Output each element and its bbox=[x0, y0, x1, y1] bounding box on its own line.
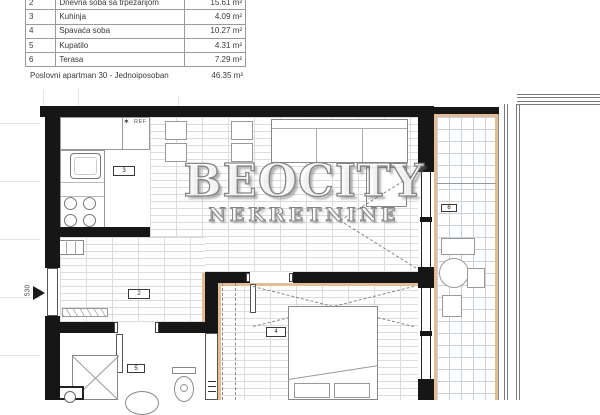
stove-burner bbox=[64, 197, 77, 210]
room-area-cell: 10.27 m² bbox=[184, 24, 245, 38]
wardrobe-dashed-line bbox=[235, 283, 236, 400]
shaft-hatch bbox=[208, 381, 216, 382]
wall-bedroom-top-right bbox=[293, 272, 418, 283]
entrance-door-leaf bbox=[47, 268, 58, 316]
entrance-arrow-icon bbox=[33, 286, 45, 300]
apartment-summary-label: Poslovni apartman 30 - Jednoiposoban bbox=[30, 71, 169, 80]
floorplan-page: { "table": { "rows": [ {"num": "2", "nam… bbox=[0, 0, 600, 400]
wall-bathroom-left bbox=[46, 322, 118, 333]
sofa-backrest-line bbox=[272, 128, 407, 129]
facade-line bbox=[519, 104, 520, 400]
room-label-text: 6 bbox=[447, 205, 450, 211]
room-name-cell: Kuhinja bbox=[56, 10, 184, 24]
room-label-terrace: 6 bbox=[441, 204, 457, 212]
stove-burner bbox=[83, 214, 96, 227]
facade-line bbox=[517, 94, 600, 95]
pillar-terrace-mid bbox=[418, 267, 434, 288]
table-row: 2 Dnevna soba sa trpezarijom 15.61 m² bbox=[26, 0, 246, 10]
wall-terrace-top bbox=[433, 107, 499, 114]
dining-chair bbox=[231, 121, 253, 140]
pillow bbox=[294, 383, 330, 398]
insulation-line bbox=[218, 286, 221, 400]
wardrobe-dashed-line bbox=[222, 283, 223, 400]
toilet-flush bbox=[180, 384, 188, 392]
room-name-cell: Spavaća soba bbox=[56, 24, 184, 38]
guide-line bbox=[0, 239, 40, 240]
room-area-cell: 4.09 m² bbox=[184, 10, 245, 24]
insulation-line bbox=[218, 283, 418, 286]
door-jamb bbox=[114, 322, 118, 333]
terrace-chair bbox=[442, 295, 462, 317]
room-area-cell: 7.29 m² bbox=[184, 53, 245, 67]
facade-line bbox=[517, 97, 600, 98]
room-label-text: 2 bbox=[137, 291, 140, 297]
terrace-chair bbox=[467, 268, 485, 288]
table-summary-row: Poslovni apartman 30 - Jednoiposoban 46.… bbox=[25, 67, 246, 80]
facade-line bbox=[507, 104, 508, 400]
room-area-table: 2 Dnevna soba sa trpezarijom 15.61 m² 3 … bbox=[25, 0, 246, 80]
room-number-cell: 5 bbox=[26, 38, 56, 52]
shaft-hatch bbox=[208, 386, 216, 387]
door-jamb bbox=[246, 273, 250, 282]
table-row: 4 Spavaća soba 10.27 m² bbox=[26, 24, 246, 38]
room-label-text: 4 bbox=[274, 329, 277, 335]
hall-cabinet-divider bbox=[75, 240, 76, 255]
wall-left-upper bbox=[45, 106, 60, 265]
wall-bathroom-right bbox=[159, 322, 210, 333]
facade-line bbox=[516, 104, 517, 400]
pillar-terrace-bottom bbox=[418, 379, 434, 400]
guide-tick bbox=[43, 90, 44, 106]
door-jamb bbox=[155, 322, 159, 333]
watermark: BEOCITY NEKRETNINE bbox=[176, 158, 432, 226]
guide-tick bbox=[178, 96, 179, 106]
bathroom-sink bbox=[125, 391, 159, 415]
room-number-cell: 6 bbox=[26, 53, 56, 67]
entrance-dimension-label: 530 bbox=[25, 276, 32, 306]
star-icon: ✶ bbox=[123, 118, 130, 126]
fridge-label: REF bbox=[134, 120, 147, 126]
room-label-bedroom: 4 bbox=[266, 327, 286, 337]
room-name-cell: Terasa bbox=[56, 53, 184, 67]
watermark-subtitle: NEKRETNINE bbox=[176, 204, 432, 226]
toilet-tank bbox=[172, 367, 196, 374]
room-label-living: 2 bbox=[128, 289, 150, 299]
room-area-table-grid: 2 Dnevna soba sa trpezarijom 15.61 m² 3 … bbox=[25, 0, 246, 67]
guide-line bbox=[0, 123, 40, 124]
hall-cabinet bbox=[58, 240, 84, 255]
facade-line bbox=[517, 104, 600, 105]
window-sash-tick bbox=[420, 331, 432, 336]
watermark-brand: BEOCITY bbox=[176, 158, 432, 203]
door-jamb bbox=[289, 273, 293, 282]
wall-kitchen bbox=[46, 227, 150, 237]
guide-line bbox=[0, 181, 40, 182]
guide-line bbox=[0, 355, 40, 356]
room-number-cell: 4 bbox=[26, 24, 56, 38]
guide-tick bbox=[78, 88, 79, 106]
room-area-cell: 15.61 m² bbox=[184, 0, 245, 10]
room-number-cell: 3 bbox=[26, 10, 56, 24]
terrace-chair bbox=[441, 238, 475, 255]
terrace-table bbox=[439, 258, 469, 288]
table-row: 5 Kupatilo 4.31 m² bbox=[26, 38, 246, 52]
room-area-cell: 4.31 m² bbox=[184, 38, 245, 52]
room-number-cell: 2 bbox=[26, 0, 56, 10]
hall-wardrobe-shelf bbox=[62, 308, 108, 317]
pillow bbox=[334, 383, 370, 398]
kitchen-sink-basin bbox=[74, 157, 97, 175]
apartment-total-area: 46.35 m² bbox=[211, 71, 243, 80]
room-label-text: 5 bbox=[134, 366, 137, 372]
table-row: 3 Kuhinja 4.09 m² bbox=[26, 10, 246, 24]
dining-chair bbox=[165, 121, 187, 140]
shaft-hatch bbox=[208, 391, 216, 392]
table-row: 6 Terasa 7.29 m² bbox=[26, 53, 246, 67]
facade-line bbox=[517, 101, 600, 102]
wall-hall-bedroom bbox=[205, 272, 218, 333]
terrace-railing bbox=[434, 114, 498, 400]
bedroom-door-leaf bbox=[250, 284, 256, 313]
washing-machine-drum bbox=[64, 391, 76, 403]
stove-burner bbox=[64, 214, 77, 227]
stove-burner bbox=[83, 197, 96, 210]
facade-line bbox=[504, 104, 505, 400]
terrace bbox=[434, 114, 499, 400]
hall-cabinet-divider bbox=[66, 240, 67, 255]
kitchen-counter-line bbox=[61, 182, 104, 183]
room-label-bathroom: 5 bbox=[127, 364, 145, 373]
room-label-kitchen: 3 bbox=[113, 166, 135, 176]
room-name-cell: Kupatilo bbox=[56, 38, 184, 52]
room-name-cell: Dnevna soba sa trpezarijom bbox=[56, 0, 184, 10]
installation-shaft bbox=[205, 333, 218, 400]
room-label-text: 3 bbox=[122, 168, 125, 174]
terrace-divider-line bbox=[437, 183, 496, 184]
wall-top bbox=[40, 106, 433, 117]
